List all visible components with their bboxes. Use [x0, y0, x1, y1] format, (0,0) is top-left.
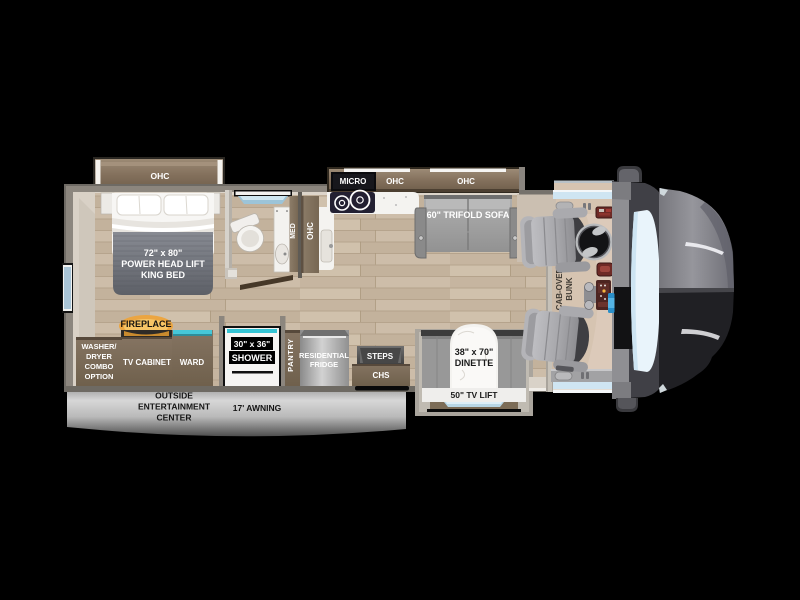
svg-text:CAB-OVER: CAB-OVER	[555, 267, 564, 310]
svg-text:50" TV LIFT: 50" TV LIFT	[450, 390, 498, 400]
svg-text:WASHER/: WASHER/	[81, 342, 117, 351]
svg-text:OHC: OHC	[386, 177, 404, 186]
svg-text:CENTER: CENTER	[157, 413, 192, 423]
svg-text:OPTION: OPTION	[85, 372, 114, 381]
svg-text:DINETTE: DINETTE	[455, 358, 494, 368]
svg-text:FRIDGE: FRIDGE	[310, 360, 338, 369]
svg-text:OHC: OHC	[306, 222, 315, 240]
svg-text:MICRO: MICRO	[340, 177, 367, 186]
svg-text:OHC: OHC	[457, 177, 475, 186]
svg-text:WARD: WARD	[180, 358, 205, 367]
svg-text:30" x 36": 30" x 36"	[234, 339, 270, 349]
svg-text:OHC: OHC	[151, 171, 170, 181]
svg-text:POWER HEAD LIFT: POWER HEAD LIFT	[121, 259, 205, 269]
svg-text:38" x 70": 38" x 70"	[455, 347, 494, 357]
svg-text:BUNK: BUNK	[565, 277, 574, 300]
svg-text:CHS: CHS	[373, 371, 391, 380]
svg-text:RESIDENTIAL: RESIDENTIAL	[299, 351, 349, 360]
svg-text:SHOWER: SHOWER	[232, 353, 273, 363]
svg-text:DRYER: DRYER	[86, 352, 113, 361]
svg-text:60" TRIFOLD SOFA: 60" TRIFOLD SOFA	[427, 210, 510, 220]
svg-text:TV CABINET: TV CABINET	[123, 358, 171, 367]
svg-text:PANTRY: PANTRY	[286, 338, 295, 372]
svg-text:72" x 80": 72" x 80"	[144, 248, 183, 258]
svg-text:COMBO: COMBO	[85, 362, 114, 371]
svg-text:ENTERTAINMENT: ENTERTAINMENT	[138, 402, 211, 412]
svg-text:17' AWNING: 17' AWNING	[233, 403, 282, 413]
svg-text:MED: MED	[290, 223, 297, 239]
svg-text:STEPS: STEPS	[367, 352, 394, 361]
svg-text:FIREPLACE: FIREPLACE	[120, 319, 171, 329]
svg-text:KING BED: KING BED	[141, 270, 186, 280]
